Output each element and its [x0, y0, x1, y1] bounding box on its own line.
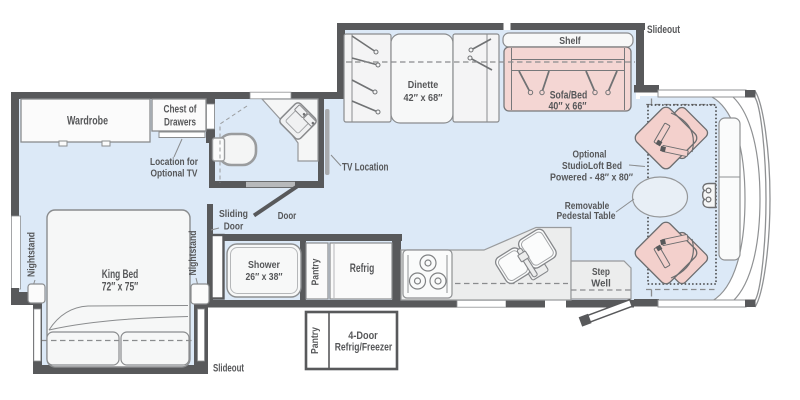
svg-text:Powered - 48″ x 80″: Powered - 48″ x 80″	[550, 173, 633, 184]
svg-text:42″ x 68″: 42″ x 68″	[404, 93, 443, 104]
svg-text:Well: Well	[591, 278, 611, 289]
svg-text:Pantry: Pantry	[310, 327, 321, 354]
svg-text:Door: Door	[224, 222, 244, 233]
svg-text:Shower: Shower	[248, 260, 280, 271]
svg-text:StudioLoft Bed: StudioLoft Bed	[562, 161, 622, 172]
svg-text:Slideout: Slideout	[213, 363, 244, 375]
svg-text:Pantry: Pantry	[311, 258, 322, 285]
svg-text:Chest of: Chest of	[164, 104, 197, 116]
svg-text:Nightstand: Nightstand	[188, 231, 199, 276]
svg-text:Step: Step	[592, 267, 610, 278]
svg-text:TV Location: TV Location	[342, 162, 389, 174]
svg-text:Refrig: Refrig	[350, 261, 375, 275]
svg-text:72″ x 75″: 72″ x 75″	[102, 280, 139, 294]
svg-text:Refrig/Freezer: Refrig/Freezer	[335, 341, 393, 353]
svg-text:Optional TV: Optional TV	[151, 169, 198, 180]
svg-text:Dinette: Dinette	[408, 80, 439, 91]
svg-text:40″ x 66″: 40″ x 66″	[549, 101, 588, 113]
svg-text:4-Door: 4-Door	[348, 330, 378, 342]
svg-text:Sliding: Sliding	[219, 209, 248, 220]
svg-text:Location for: Location for	[150, 157, 198, 168]
svg-text:Shelf: Shelf	[559, 36, 581, 47]
svg-text:Pedestal Table: Pedestal Table	[557, 211, 616, 222]
svg-text:Drawers: Drawers	[164, 117, 196, 129]
svg-text:Wardrobe: Wardrobe	[67, 114, 108, 128]
svg-text:26″ x 38″: 26″ x 38″	[246, 272, 283, 283]
svg-text:Optional: Optional	[573, 149, 607, 160]
svg-text:Nightstand: Nightstand	[27, 232, 38, 277]
svg-text:Slideout: Slideout	[647, 24, 680, 36]
svg-text:Door: Door	[278, 211, 297, 222]
